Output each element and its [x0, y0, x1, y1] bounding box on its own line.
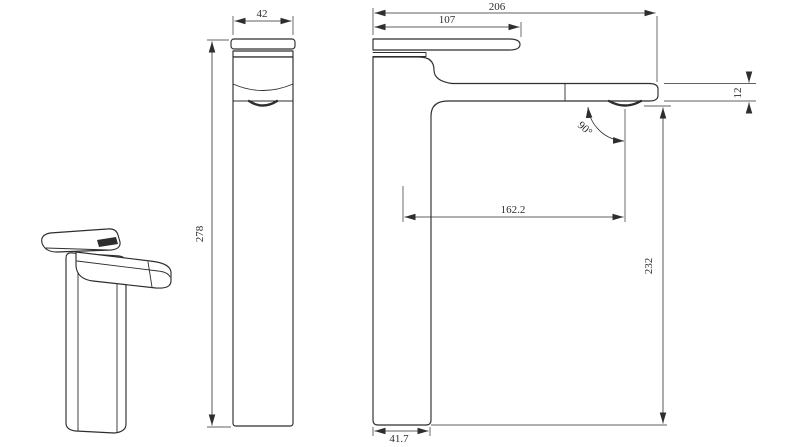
dim-handle-reach-label: 107	[439, 14, 456, 26]
dim-spout-height-label: 232	[643, 258, 655, 275]
dim-spout-thickness: 12	[732, 72, 749, 113]
side-body-spout	[373, 57, 658, 425]
dim-outlet-angle: 90°	[575, 107, 624, 141]
dim-base-depth: 41.7	[375, 431, 429, 445]
dim-handle-width: 42	[235, 8, 292, 21]
drawing-canvas: 42 278 107 206 12 162.2	[0, 0, 800, 447]
dim-overall-reach-label: 206	[489, 1, 506, 13]
technical-drawing-page: 42 278 107 206 12 162.2	[0, 0, 800, 447]
front-body	[233, 57, 293, 426]
dim-overall-height: 278	[194, 42, 212, 426]
dim-handle-width-label: 42	[257, 8, 268, 20]
dim-spout-height: 232	[643, 108, 663, 424]
front-view	[231, 39, 295, 426]
side-handle-collar	[373, 53, 426, 57]
perspective-view	[42, 229, 171, 433]
dim-overall-reach: 206	[375, 1, 656, 13]
dim-base-depth-label: 41.7	[389, 433, 409, 445]
side-handle-lever	[373, 39, 520, 50]
dim-overall-height-label: 278	[194, 225, 206, 242]
dim-handle-reach: 107	[375, 14, 520, 27]
side-view	[373, 39, 667, 425]
dim-outlet-angle-label: 90°	[575, 119, 594, 138]
dim-spout-thickness-label: 12	[732, 88, 744, 99]
dim-spout-reach-label: 162.2	[501, 204, 526, 216]
dim-spout-reach: 162.2	[405, 204, 624, 217]
front-handle-bar	[231, 39, 295, 49]
front-handle-collar	[233, 51, 293, 57]
